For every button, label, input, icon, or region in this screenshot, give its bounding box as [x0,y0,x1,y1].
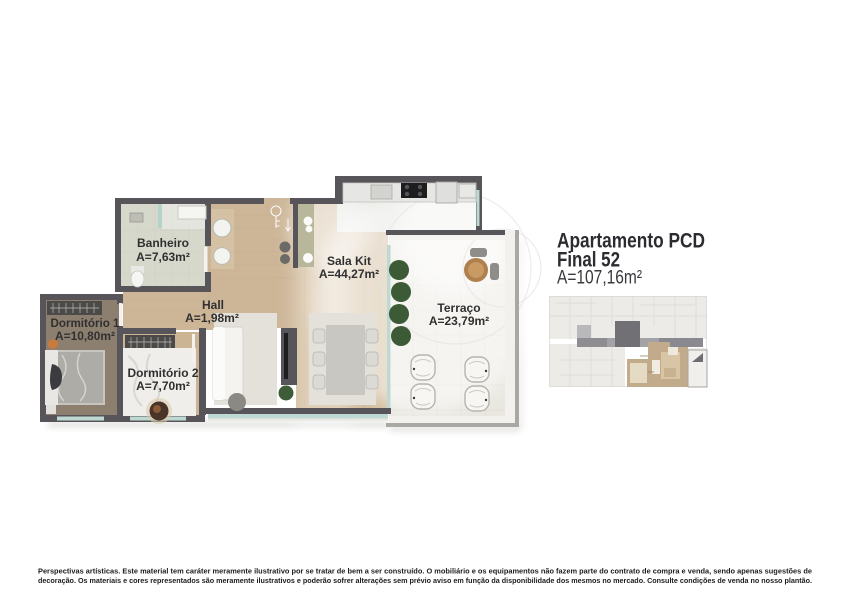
svg-text:A=7,63m²: A=7,63m² [136,250,190,264]
svg-text:A=23,79m²: A=23,79m² [429,314,489,328]
svg-text:A=1,98m²: A=1,98m² [185,311,239,325]
svg-text:Dormitório 2: Dormitório 2 [128,366,199,380]
svg-text:A=107,16m²: A=107,16m² [557,268,642,289]
svg-text:A=44,27m²: A=44,27m² [319,267,379,281]
svg-text:A=7,70m²: A=7,70m² [136,379,190,393]
svg-text:decoração. Os materiais e core: decoração. Os materiais e cores represen… [38,576,812,585]
svg-text:Terraço: Terraço [437,301,480,315]
svg-text:Hall: Hall [202,298,224,312]
svg-text:A=10,80m²: A=10,80m² [55,329,115,343]
svg-text:Sala Kit: Sala Kit [327,254,371,268]
svg-text:Perspectivas artísticas. Este: Perspectivas artísticas. Este material t… [38,567,812,576]
svg-text:Banheiro: Banheiro [137,236,189,250]
svg-text:Dormitório 1: Dormitório 1 [51,316,120,330]
